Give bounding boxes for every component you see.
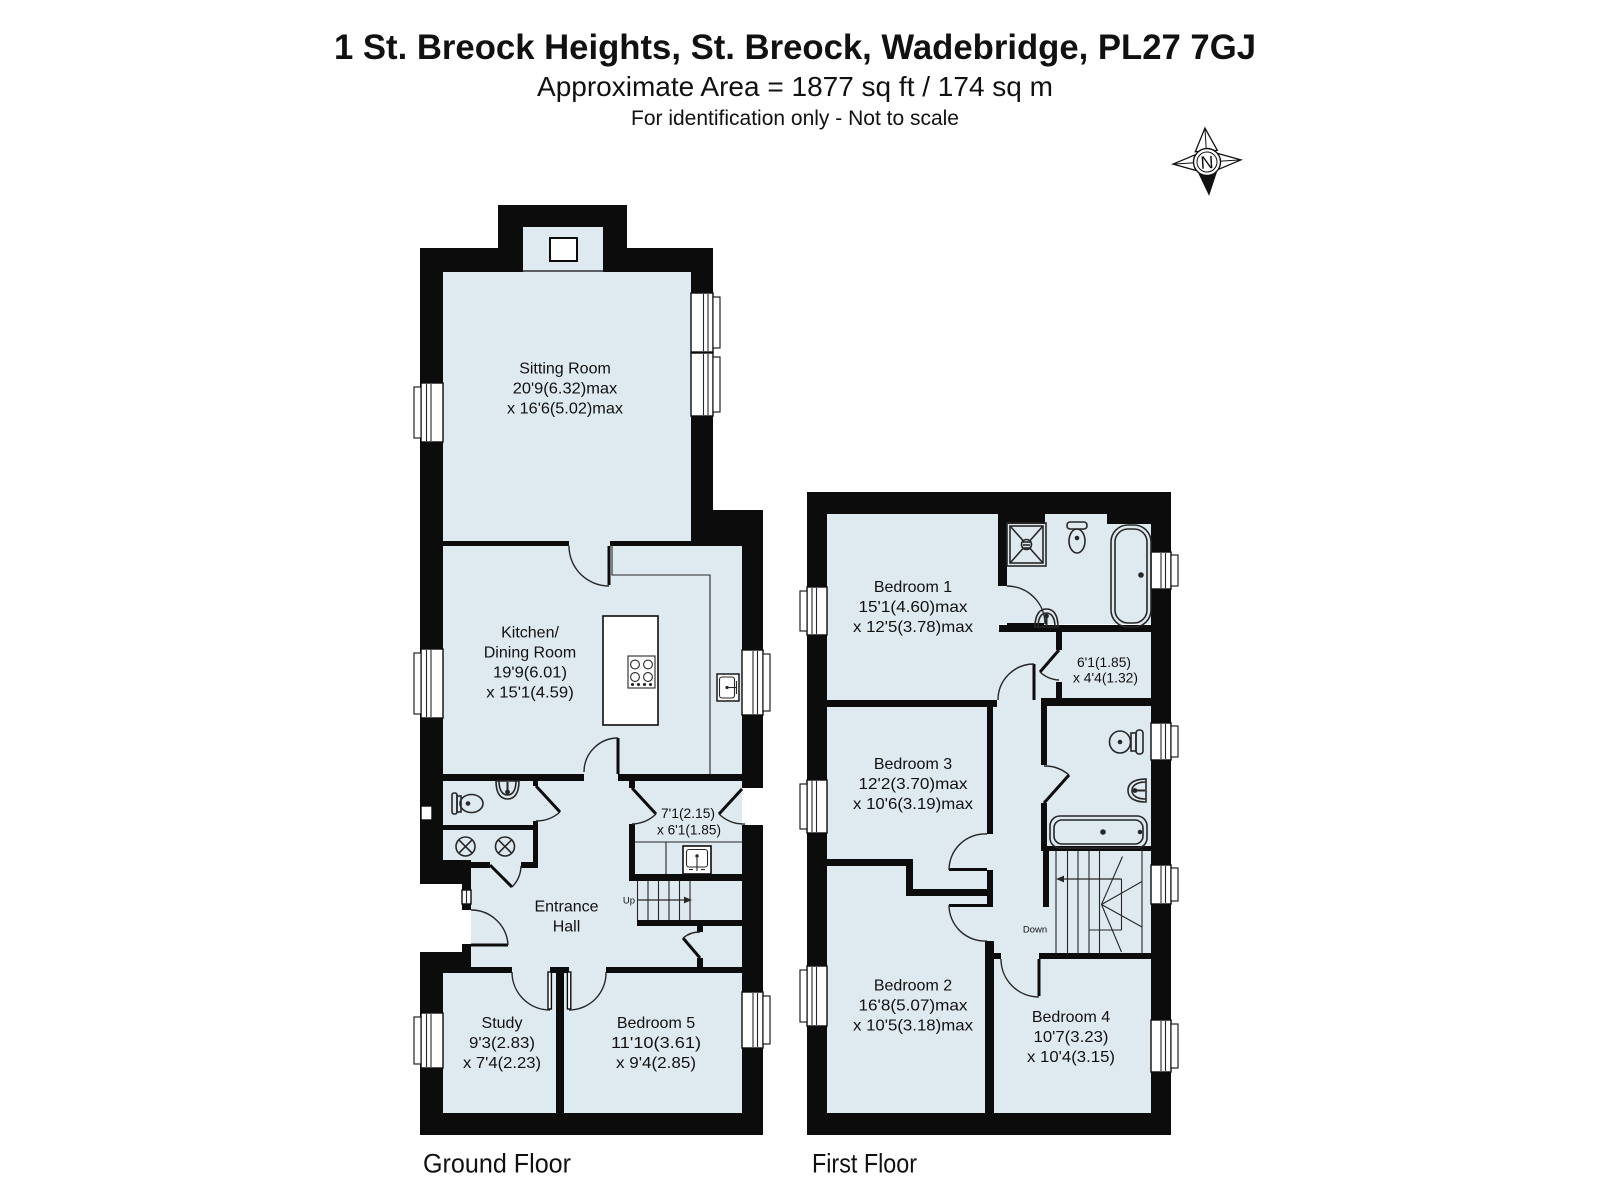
svg-text:Bedroom 4: Bedroom 4 (1032, 1009, 1110, 1026)
svg-text:x 7'4(2.23): x 7'4(2.23) (463, 1055, 541, 1072)
svg-text:First Floor: First Floor (812, 1149, 917, 1179)
svg-text:20'9(6.32)max: 20'9(6.32)max (513, 381, 618, 398)
svg-text:Approximate Area = 1877 sq ft: Approximate Area = 1877 sq ft / 174 sq m (537, 71, 1053, 102)
svg-text:x 10'6(3.19)max: x 10'6(3.19)max (853, 796, 973, 813)
svg-text:Ground Floor: Ground Floor (423, 1149, 571, 1179)
svg-text:Bedroom 5: Bedroom 5 (617, 1015, 695, 1032)
svg-text:Hall: Hall (553, 919, 581, 936)
svg-text:15'1(4.60)max: 15'1(4.60)max (859, 599, 968, 616)
svg-text:9'3(2.83): 9'3(2.83) (469, 1035, 535, 1052)
svg-text:7'1(2.15): 7'1(2.15) (661, 805, 715, 821)
svg-text:x 9'4(2.85): x 9'4(2.85) (616, 1055, 696, 1072)
svg-text:1 St. Breock Heights, St. Breo: 1 St. Breock Heights, St. Breock, Wadebr… (334, 28, 1256, 67)
svg-text:Entrance: Entrance (534, 899, 598, 916)
svg-text:6'1(1.85): 6'1(1.85) (1077, 654, 1131, 670)
svg-text:Up: Up (623, 896, 635, 907)
svg-text:Study: Study (482, 1015, 523, 1032)
svg-text:Bedroom 3: Bedroom 3 (874, 756, 952, 773)
svg-text:x 10'4(3.15): x 10'4(3.15) (1027, 1049, 1115, 1066)
svg-text:x 16'6(5.02)max: x 16'6(5.02)max (507, 401, 623, 418)
svg-text:10'7(3.23): 10'7(3.23) (1034, 1029, 1109, 1046)
svg-text:Sitting Room: Sitting Room (519, 361, 611, 378)
svg-text:For identification only - Not: For identification only - Not to scale (631, 107, 959, 130)
svg-text:x 10'5(3.18)max: x 10'5(3.18)max (853, 1018, 973, 1035)
svg-text:Dining Room: Dining Room (484, 645, 576, 662)
svg-text:Down: Down (1023, 925, 1047, 936)
svg-text:x 4'4(1.32): x 4'4(1.32) (1073, 670, 1138, 686)
svg-text:x 15'1(4.59): x 15'1(4.59) (486, 685, 574, 702)
svg-text:19'9(6.01): 19'9(6.01) (493, 665, 567, 682)
svg-text:12'2(3.70)max: 12'2(3.70)max (859, 776, 968, 793)
svg-text:N: N (1200, 152, 1214, 173)
svg-text:Bedroom 1: Bedroom 1 (874, 579, 952, 596)
svg-text:Kitchen/: Kitchen/ (501, 625, 559, 642)
svg-text:x 6'1(1.85): x 6'1(1.85) (657, 822, 721, 838)
svg-text:11'10(3.61): 11'10(3.61) (611, 1035, 701, 1052)
svg-text:x 12'5(3.78)max: x 12'5(3.78)max (853, 619, 973, 636)
svg-text:Bedroom 2: Bedroom 2 (874, 978, 952, 995)
svg-text:16'8(5.07)max: 16'8(5.07)max (859, 998, 968, 1015)
